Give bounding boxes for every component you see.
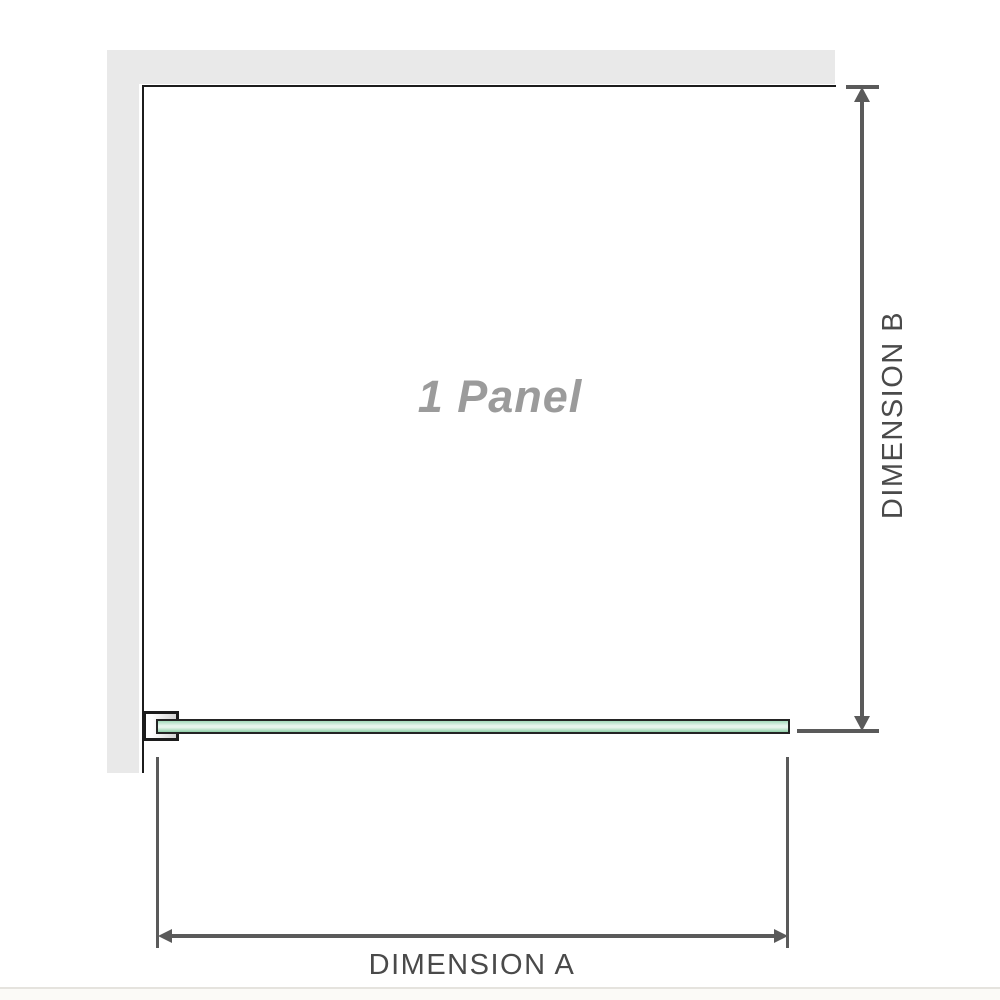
- wall-top-segment: [107, 50, 835, 84]
- arrowhead-left-icon: [158, 929, 172, 943]
- glass-panel: [156, 719, 790, 734]
- panel-count-label: 1 Panel: [340, 368, 660, 426]
- arrowhead-down-icon: [854, 716, 870, 731]
- arrowhead-up-icon: [854, 87, 870, 102]
- dimension-a-label: DIMENSION A: [322, 948, 622, 982]
- enclosure-outline: [142, 85, 836, 773]
- dimension-a-right-tick: [786, 757, 789, 948]
- footer-divider: [0, 987, 1000, 989]
- dimension-a-line: [170, 934, 776, 938]
- diagram-canvas: 1 Panel DIMENSION B DIMENSION A: [0, 0, 1000, 1000]
- wall-left-segment: [107, 50, 139, 773]
- dimension-a-left-tick: [156, 757, 159, 948]
- footer-background: [0, 989, 1000, 1000]
- dimension-b-line: [860, 100, 864, 718]
- arrowhead-right-icon: [774, 929, 788, 943]
- dimension-b-label: DIMENSION B: [877, 265, 909, 565]
